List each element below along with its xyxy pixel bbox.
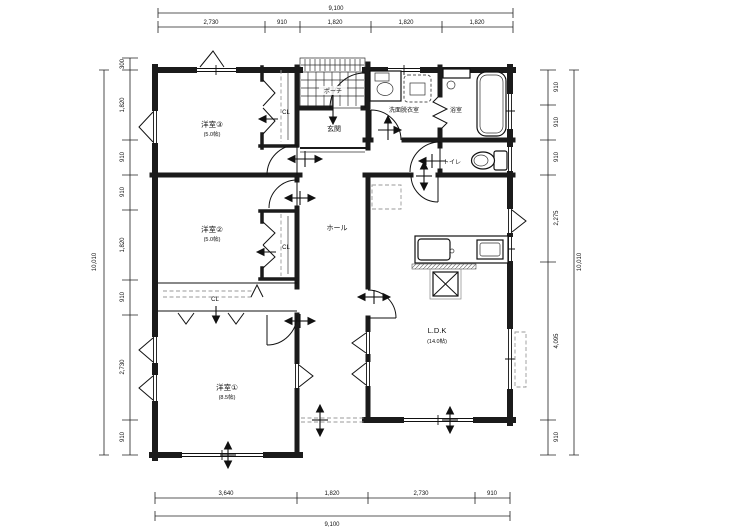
kitchen-counter bbox=[412, 236, 508, 269]
dim-top-seg: 1,820 bbox=[327, 20, 343, 26]
floor-plan-svg: 9,100 2,730 910 1,820 1,820 1,820 3,640 … bbox=[0, 0, 738, 532]
dim-right-seg: 910 bbox=[554, 151, 560, 162]
room-size-yoshitsu1: (8.5帖) bbox=[219, 393, 236, 401]
dim-bottom-seg: 1,820 bbox=[324, 491, 340, 497]
steps-and-dashes bbox=[300, 148, 526, 422]
closet-yoshitsu1: CL bbox=[158, 283, 297, 324]
dim-right-seg: 2,275 bbox=[554, 210, 560, 226]
dim-left-seg: 910 bbox=[120, 291, 126, 302]
dim-left-total: 10,010 bbox=[92, 252, 98, 271]
closet-label: CL bbox=[282, 245, 290, 251]
closet-yoshitsu2: CL bbox=[257, 211, 297, 279]
room-label-yoshitsu1: 洋室① bbox=[216, 382, 238, 392]
room-label-toilet: トイレ bbox=[443, 160, 461, 166]
dim-bottom-seg: 2,730 bbox=[413, 491, 429, 497]
closet-label: CL bbox=[282, 110, 290, 116]
closet-yoshitsu3: CL bbox=[259, 67, 297, 148]
dim-bottom-total: 9,100 bbox=[324, 522, 340, 528]
room-label-yoshitsu2: 洋室② bbox=[201, 224, 223, 234]
washstand bbox=[370, 71, 401, 101]
bathtub bbox=[443, 69, 506, 136]
dim-left-seg: 2,730 bbox=[120, 359, 126, 375]
dim-left-seg: 910 bbox=[120, 186, 126, 197]
dim-right-seg: 910 bbox=[554, 116, 560, 127]
room-label-hall: ホール bbox=[327, 224, 348, 232]
room-size-yoshitsu2: (5.0帖) bbox=[204, 235, 221, 243]
dimension-right: 910 910 910 2,275 4,095 910 10,010 bbox=[540, 70, 583, 455]
toilet-fixture bbox=[472, 151, 508, 170]
room-label-genkan: 玄関 bbox=[327, 124, 341, 133]
opening-arrows bbox=[220, 86, 458, 468]
dim-bottom-seg: 910 bbox=[487, 491, 498, 497]
dim-left-seg: 910 bbox=[120, 431, 126, 442]
dimension-top: 9,100 2,730 910 1,820 1,820 1,820 bbox=[158, 6, 513, 33]
dim-right-seg: 910 bbox=[554, 81, 560, 92]
room-label-yoshitsu3: 洋室③ bbox=[201, 119, 223, 129]
dim-top-total: 9,100 bbox=[328, 6, 344, 12]
floor-plan-page: 9,100 2,730 910 1,820 1,820 1,820 3,640 … bbox=[0, 0, 738, 532]
dim-left-seg: 300 bbox=[120, 58, 126, 69]
dim-left-seg: 1,820 bbox=[120, 237, 126, 253]
dim-right-seg: 910 bbox=[554, 431, 560, 442]
room-label-washroom: 洗面脱衣室 bbox=[389, 106, 419, 114]
dim-left-seg: 910 bbox=[120, 151, 126, 162]
dim-right-seg: 4,095 bbox=[554, 333, 560, 349]
door-arcs bbox=[267, 73, 447, 345]
dimension-bottom: 3,640 1,820 2,730 910 9,100 bbox=[155, 491, 510, 528]
dim-top-seg: 910 bbox=[277, 20, 288, 26]
dim-top-seg: 1,820 bbox=[398, 20, 414, 26]
dim-left-seg: 1,820 bbox=[120, 97, 126, 113]
dim-top-seg: 1,820 bbox=[469, 20, 485, 26]
room-size-ldk: (14.0帖) bbox=[427, 337, 447, 345]
dim-bottom-seg: 3,640 bbox=[218, 491, 234, 497]
closet-label: CL bbox=[211, 297, 219, 303]
hatch-box bbox=[430, 269, 461, 299]
room-size-yoshitsu3: (5.0帖) bbox=[204, 130, 221, 138]
dim-top-seg: 2,730 bbox=[203, 20, 219, 26]
room-label-bathroom: 浴室 bbox=[450, 106, 462, 114]
washing-machine bbox=[404, 75, 431, 102]
dimension-left: 300 1,820 910 910 1,820 910 2,730 910 10… bbox=[92, 58, 138, 455]
room-label-ldk: L.D.K bbox=[428, 326, 447, 335]
room-label-porch: ポーチ bbox=[324, 87, 342, 95]
dim-right-total: 10,010 bbox=[577, 252, 583, 271]
